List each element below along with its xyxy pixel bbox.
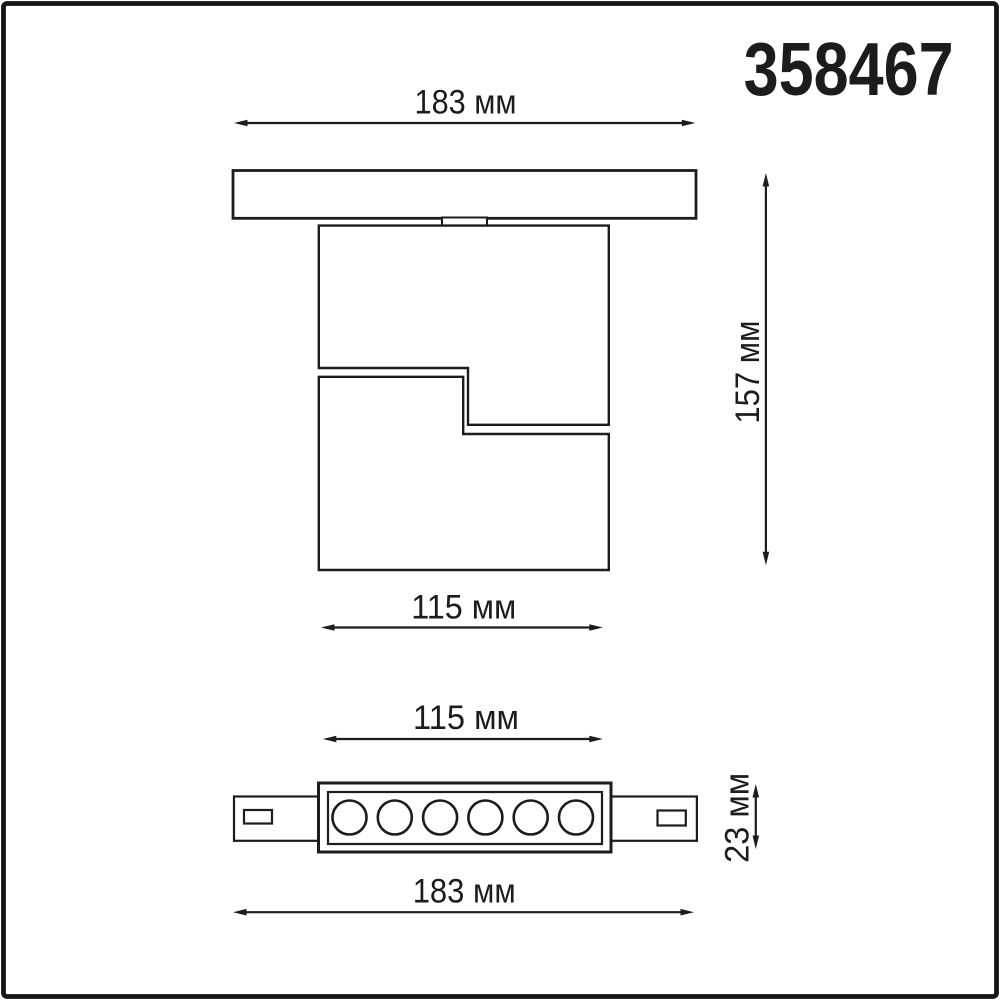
svg-text:115 мм: 115 мм	[413, 699, 519, 737]
svg-text:23 мм: 23 мм	[718, 773, 756, 863]
svg-text:115 мм: 115 мм	[411, 589, 516, 627]
svg-text:183 мм: 183 мм	[415, 84, 517, 122]
svg-text:157 мм: 157 мм	[729, 321, 767, 424]
svg-text:358467: 358467	[744, 27, 954, 111]
svg-text:183 мм: 183 мм	[413, 873, 516, 911]
